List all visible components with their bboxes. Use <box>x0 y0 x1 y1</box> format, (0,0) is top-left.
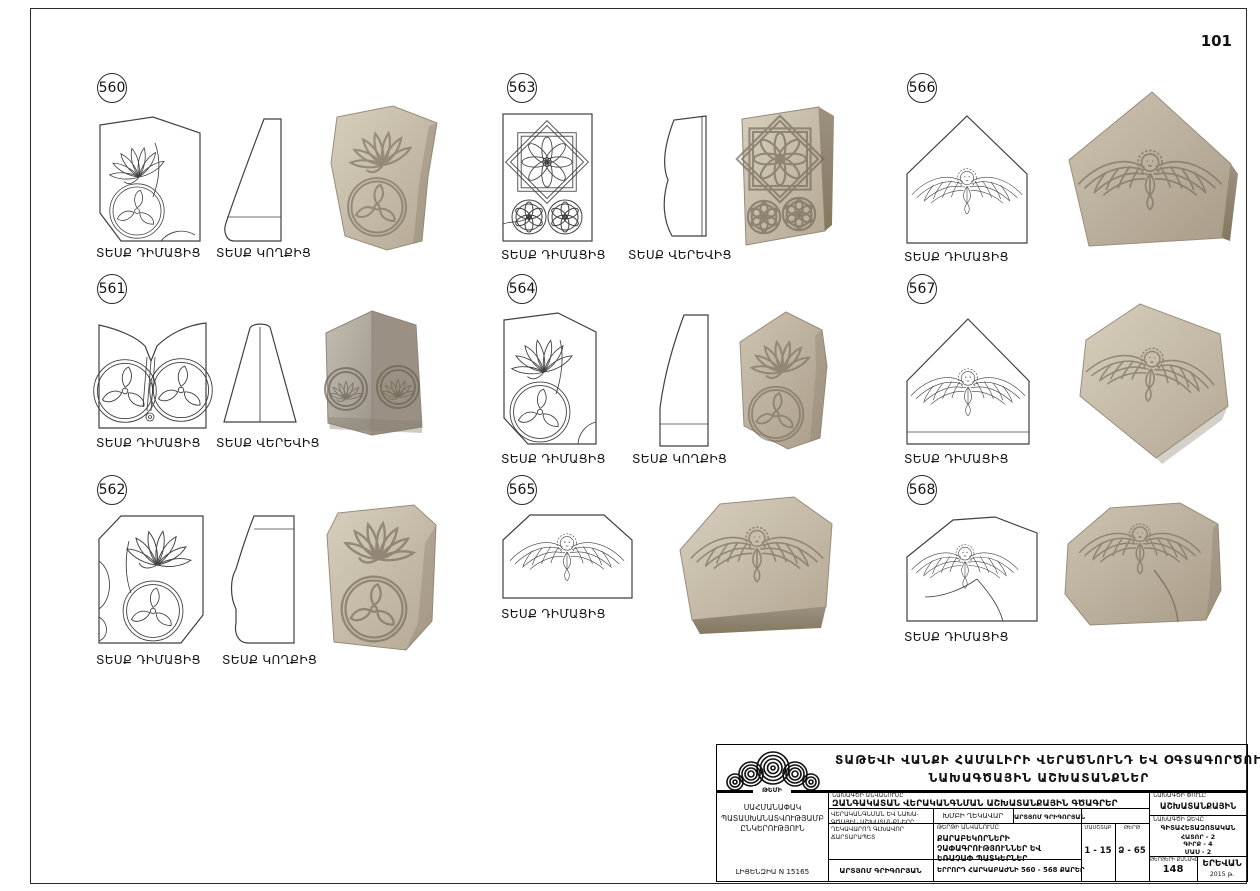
top-view-drawing <box>218 318 303 430</box>
front-view-label: ՏԵՍՔ ԴԻՄԱՑԻՑ <box>501 607 606 621</box>
front-view-drawing <box>903 315 1033 448</box>
item-number-badge: 565 <box>507 475 537 505</box>
front-view-drawing <box>903 112 1031 247</box>
stone-photo <box>1058 498 1230 630</box>
chief-architect-role: ՎԵՐԱԿԱՆԳՆՄԱՆ ԵՎ ՆԱԽԱ­ԳԾԱՅԻՆ ԱՇԽԱՏԱՆՔՆԵՐԸ… <box>831 811 930 841</box>
title-block: ԹԵՄԻ ՏԱԹԵՎԻ ՎԱՆՔԻ ՀԱՄԱԼԻՐԻ ՎԵՐԱԾՆՈՒՆԴ ԵՎ… <box>716 744 1248 882</box>
type-line1: ԳԻՏԱՀԵՏԱԶՈՏԱԿԱՆ <box>1149 824 1247 832</box>
front-view-drawing <box>500 510 635 602</box>
stone-photo <box>318 305 430 443</box>
front-view-label: ՏԵՍՔ ԴԻՄԱՑԻՑ <box>501 248 606 262</box>
front-view-label: ՏԵՍՔ ԴԻՄԱՑԻՑ <box>904 452 1009 466</box>
sheet-subtitle: ԵՐՐՈՐԴ ՀԱՐԿԱԲԱԺՆԻ 560 - 568 ՔԱՐԵՐ <box>937 866 1084 874</box>
stone-photo <box>1058 298 1233 465</box>
item-number-badge: 567 <box>907 274 937 304</box>
front-view-label: ՏԵՍՔ ԴԻՄԱՑԻՑ <box>904 250 1009 264</box>
side-view-label: ՏԵՍՔ ԿՈՂՔԻՑ <box>216 246 311 260</box>
city-name: ԵՐԵՎԱՆ <box>1198 859 1246 869</box>
item-563: 563 ՏԵՍՔ ԴԻՄԱՑԻՑ ՏԵՍՔ ՎԵՐԵՎԻՑ <box>498 72 858 268</box>
stone-photo <box>325 103 440 253</box>
sheet-count-value: 148 <box>1150 864 1196 875</box>
front-view-drawing <box>95 315 210 433</box>
stone-photo <box>1055 88 1240 255</box>
item-562: 562 ՏԵՍՔ ԴԻՄԱՑԻՑ ՏԵՍՔ ԿՈՂՔԻՑ <box>88 474 453 684</box>
side-view-label: ՏԵՍՔ ԿՈՂՔԻՑ <box>632 452 727 466</box>
sheet-count-label: ԹԵՐԹԵՐԻ ՔԱՆԱԿԸ <box>1150 858 1196 863</box>
scale-label: ՄԱՍՇՏԱԲ <box>1081 825 1115 831</box>
side-view-label: ՏԵՍՔ ԿՈՂՔԻՑ <box>222 653 317 667</box>
front-view-label: ՏԵՍՔ ԴԻՄԱՑԻՑ <box>96 653 201 667</box>
item-560: 560 ՏԵՍՔ ԴԻՄԱՑԻՑ ՏԵՍՔ ԿՈՂՔԻՑ <box>88 72 453 268</box>
page-number: 101 <box>1150 32 1232 50</box>
item-561: 561 ՏԵՍՔ ԴԻՄԱՑԻՑ ՏԵՍՔ ՎԵՐԵՎԻՑ <box>88 273 453 469</box>
item-number-badge: 562 <box>97 475 127 505</box>
front-view-label: ՏԵՍՔ ԴԻՄԱՑԻՑ <box>904 630 1009 644</box>
front-view-drawing <box>95 113 207 247</box>
front-view-drawing <box>500 310 600 448</box>
type-label: ՆԱԽԱԳԾԻ ՁԵՎԸ <box>1153 817 1204 823</box>
top-view-drawing <box>650 112 712 240</box>
side-view-drawing <box>222 513 300 648</box>
item-number-badge: 566 <box>907 73 937 103</box>
front-view-drawing <box>500 110 595 245</box>
phase-value: ԱՇԽԱՏԱՆՔԱՅԻՆ <box>1149 801 1247 811</box>
project-name: ԶԱՆԳԱԿԱՏԱՆ ՎԵՐԱԿԱՆԳՆՄԱՆ ԱՇԽԱՏԱՆՔԱՅԻՆ ԳԾԱ… <box>832 799 1118 809</box>
titleblock-line <box>1149 856 1247 857</box>
titleblock-line <box>933 808 934 881</box>
item-number-badge: 560 <box>97 73 127 103</box>
sheet-name-label: ԹԵՐԹԻ ԱՆՎԱՆՈՒՄԸ <box>937 825 999 831</box>
item-number-badge: 564 <box>507 274 537 304</box>
front-view-label: ՏԵՍՔ ԴԻՄԱՑԻՑ <box>501 452 606 466</box>
item-number-badge: 568 <box>907 475 937 505</box>
main-title-line2: ՆԱԽԱԳԾԱՅԻՆ ԱՇԽԱՏԱՆՔՆԵՐ <box>835 771 1243 785</box>
year: 2015 թ. <box>1198 871 1246 878</box>
phase-label: ՆԱԽԱԳԾԻ ՓՈՒԼԸ <box>1153 793 1206 799</box>
front-view-drawing <box>903 513 1041 625</box>
logo-text: ԹԵՄԻ <box>753 786 791 794</box>
format-label: ԹԵՐԹ <box>1115 825 1149 831</box>
company-name: ՍԱՀՄԱՆԱՓԱԿ ՊԱՏԱՍԽԱՆԱՏՎՈՒԹՅԱՄԲ ԸՆԿԵՐՈՒԹՅՈ… <box>720 803 825 835</box>
side-view-drawing <box>648 312 712 450</box>
item-565: 565 ՏԵՍՔ ԴԻՄԱՑԻՑ <box>498 474 858 654</box>
side-view-drawing <box>218 115 292 247</box>
stone-photo <box>730 308 832 453</box>
chief-architect-name: ԱՐՏՅՈՄ ԳՐԻԳՈՐՅԱՆ <box>830 866 931 875</box>
item-568: 568 ՏԵՍՔ ԴԻՄԱՑԻՑ <box>898 474 1246 654</box>
format-value: Ձ - 65 <box>1115 846 1149 856</box>
stone-photo <box>672 492 842 640</box>
group-lead-label: ԽՄԲԻ ՂԵԿԱՎԱՐ <box>935 812 1011 820</box>
sheet-name: ՔԱՐԱԲԵԿՈՐՆԵՐԻ ՉԱՓԱԳՐՈՒԹՅՈՒՆՆԵՐ ԵՎ ԵՌԱՉԱՓ… <box>937 834 1079 864</box>
stone-photo <box>322 503 440 655</box>
top-view-label: ՏԵՍՔ ՎԵՐԵՎԻՑ <box>216 436 320 450</box>
type-line4: ՄԱՍ - 2 <box>1149 848 1247 856</box>
stone-photo <box>733 103 838 253</box>
front-view-label: ՏԵՍՔ ԴԻՄԱՑԻՑ <box>96 436 201 450</box>
top-view-label: ՏԵՍՔ ՎԵՐԵՎԻՑ <box>628 248 732 262</box>
item-564: 564 ՏԵՍՔ ԴԻՄԱՑԻՑ ՏԵՍՔ ԿՈՂՔԻՑ <box>498 273 858 473</box>
license-number: ԼԻՑԵՆԶԻԱ N 15165 <box>720 867 825 876</box>
item-566: 566 ՏԵՍՔ ԴԻՄԱՑԻՑ <box>898 72 1246 268</box>
group-lead-name: ԱՐՏՅՈՄ ԳՐԻԳՈՐՅԱՆ <box>1014 813 1080 821</box>
drawing-sheet: 101 560 ՏԵՍՔ ԴԻՄԱՑԻՑ ՏԵՍՔ ԿՈՂՔԻՑ 561 <box>0 0 1260 891</box>
main-title-line1: ՏԱԹԵՎԻ ՎԱՆՔԻ ՀԱՄԱԼԻՐԻ ՎԵՐԱԾՆՈՒՆԴ ԵՎ ՕԳՏԱ… <box>835 753 1243 767</box>
front-view-label: ՏԵՍՔ ԴԻՄԱՑԻՑ <box>96 246 201 260</box>
item-number-badge: 561 <box>97 274 127 304</box>
front-view-drawing <box>95 513 207 648</box>
titleblock-line <box>828 791 829 881</box>
scale-value: 1 - 15 <box>1081 846 1115 856</box>
item-567: 567 ՏԵՍՔ ԴԻՄԱՑԻՑ <box>898 273 1246 473</box>
item-number-badge: 563 <box>507 73 537 103</box>
